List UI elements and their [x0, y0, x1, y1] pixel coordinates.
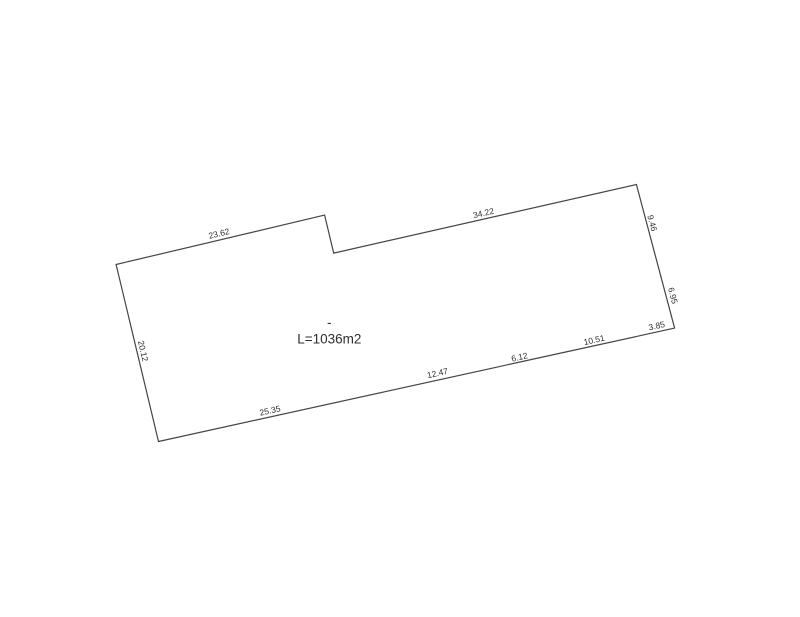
svg-text:L=1036m2: L=1036m2: [297, 332, 361, 347]
svg-text:-: -: [327, 315, 332, 330]
